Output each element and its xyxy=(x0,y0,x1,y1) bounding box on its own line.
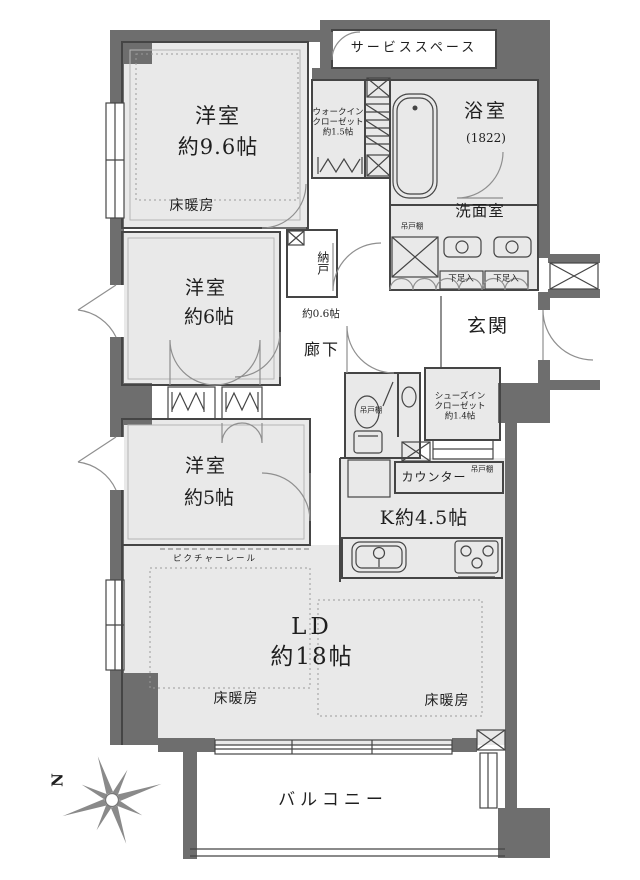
picture-rail-label: ピクチャーレール xyxy=(173,555,257,565)
bathroom-name: 浴室 xyxy=(464,101,508,123)
entrance-name: 玄関 xyxy=(467,316,509,338)
hallway-name: 廊下 xyxy=(304,341,340,359)
ld-floor-heating-left: 床暖房 xyxy=(214,691,259,707)
compass-north-label: N xyxy=(49,773,66,787)
door-kitchen-passage xyxy=(347,326,394,373)
bedroom-main-size: 約9.6帖 xyxy=(178,135,258,159)
storage-name: 納戸 xyxy=(315,251,329,275)
door-washroom xyxy=(333,243,381,291)
shoe-box-right-label: 下足入 xyxy=(493,275,519,285)
ld-floor-heating-right: 床暖房 xyxy=(425,693,470,709)
washroom-name: 洗面室 xyxy=(455,203,505,221)
storage-size: 約0.6帖 xyxy=(302,308,340,320)
counter-cupboard-label: 吊戸棚 xyxy=(471,466,494,475)
bedroom-mid-size: 約6帖 xyxy=(184,307,234,329)
sic-sliding-door xyxy=(433,440,493,459)
counter-name: カウンター xyxy=(401,471,466,485)
bedroom-mid-name: 洋室 xyxy=(185,278,227,300)
bathroom-size: (1822) xyxy=(466,132,506,146)
bedroom-small-name: 洋室 xyxy=(185,456,227,478)
living-dining-size: 約18帖 xyxy=(270,644,353,670)
entrance-door xyxy=(543,310,593,360)
shoe-box-left-label: 下足入 xyxy=(448,275,474,285)
balcony-name: バルコニー xyxy=(278,791,388,811)
bedroom-main-floor-heating: 床暖房 xyxy=(170,198,215,214)
floorplan-image: サービススペース 洋室 約9.6帖 床暖房 ウォークイン クローゼット 約1.5… xyxy=(0,0,640,880)
kitchen-name: K約4.5帖 xyxy=(380,508,468,530)
bedroom-main-name: 洋室 xyxy=(195,104,241,128)
living-dining-name: LD xyxy=(291,614,333,640)
toilet-cupboard-label: 吊戸棚 xyxy=(360,407,383,416)
compass-icon xyxy=(48,740,175,860)
service-space-label: サービススペース xyxy=(351,42,477,57)
walk-in-closet-label: ウォークイン クローゼット 約1.5帖 xyxy=(312,108,363,137)
shoes-in-closet-label: シューズイン クローゼット 約1.4帖 xyxy=(434,392,485,421)
washroom-cupboard-label: 吊戸棚 xyxy=(401,223,424,232)
bedroom-small-size: 約5帖 xyxy=(184,488,234,510)
